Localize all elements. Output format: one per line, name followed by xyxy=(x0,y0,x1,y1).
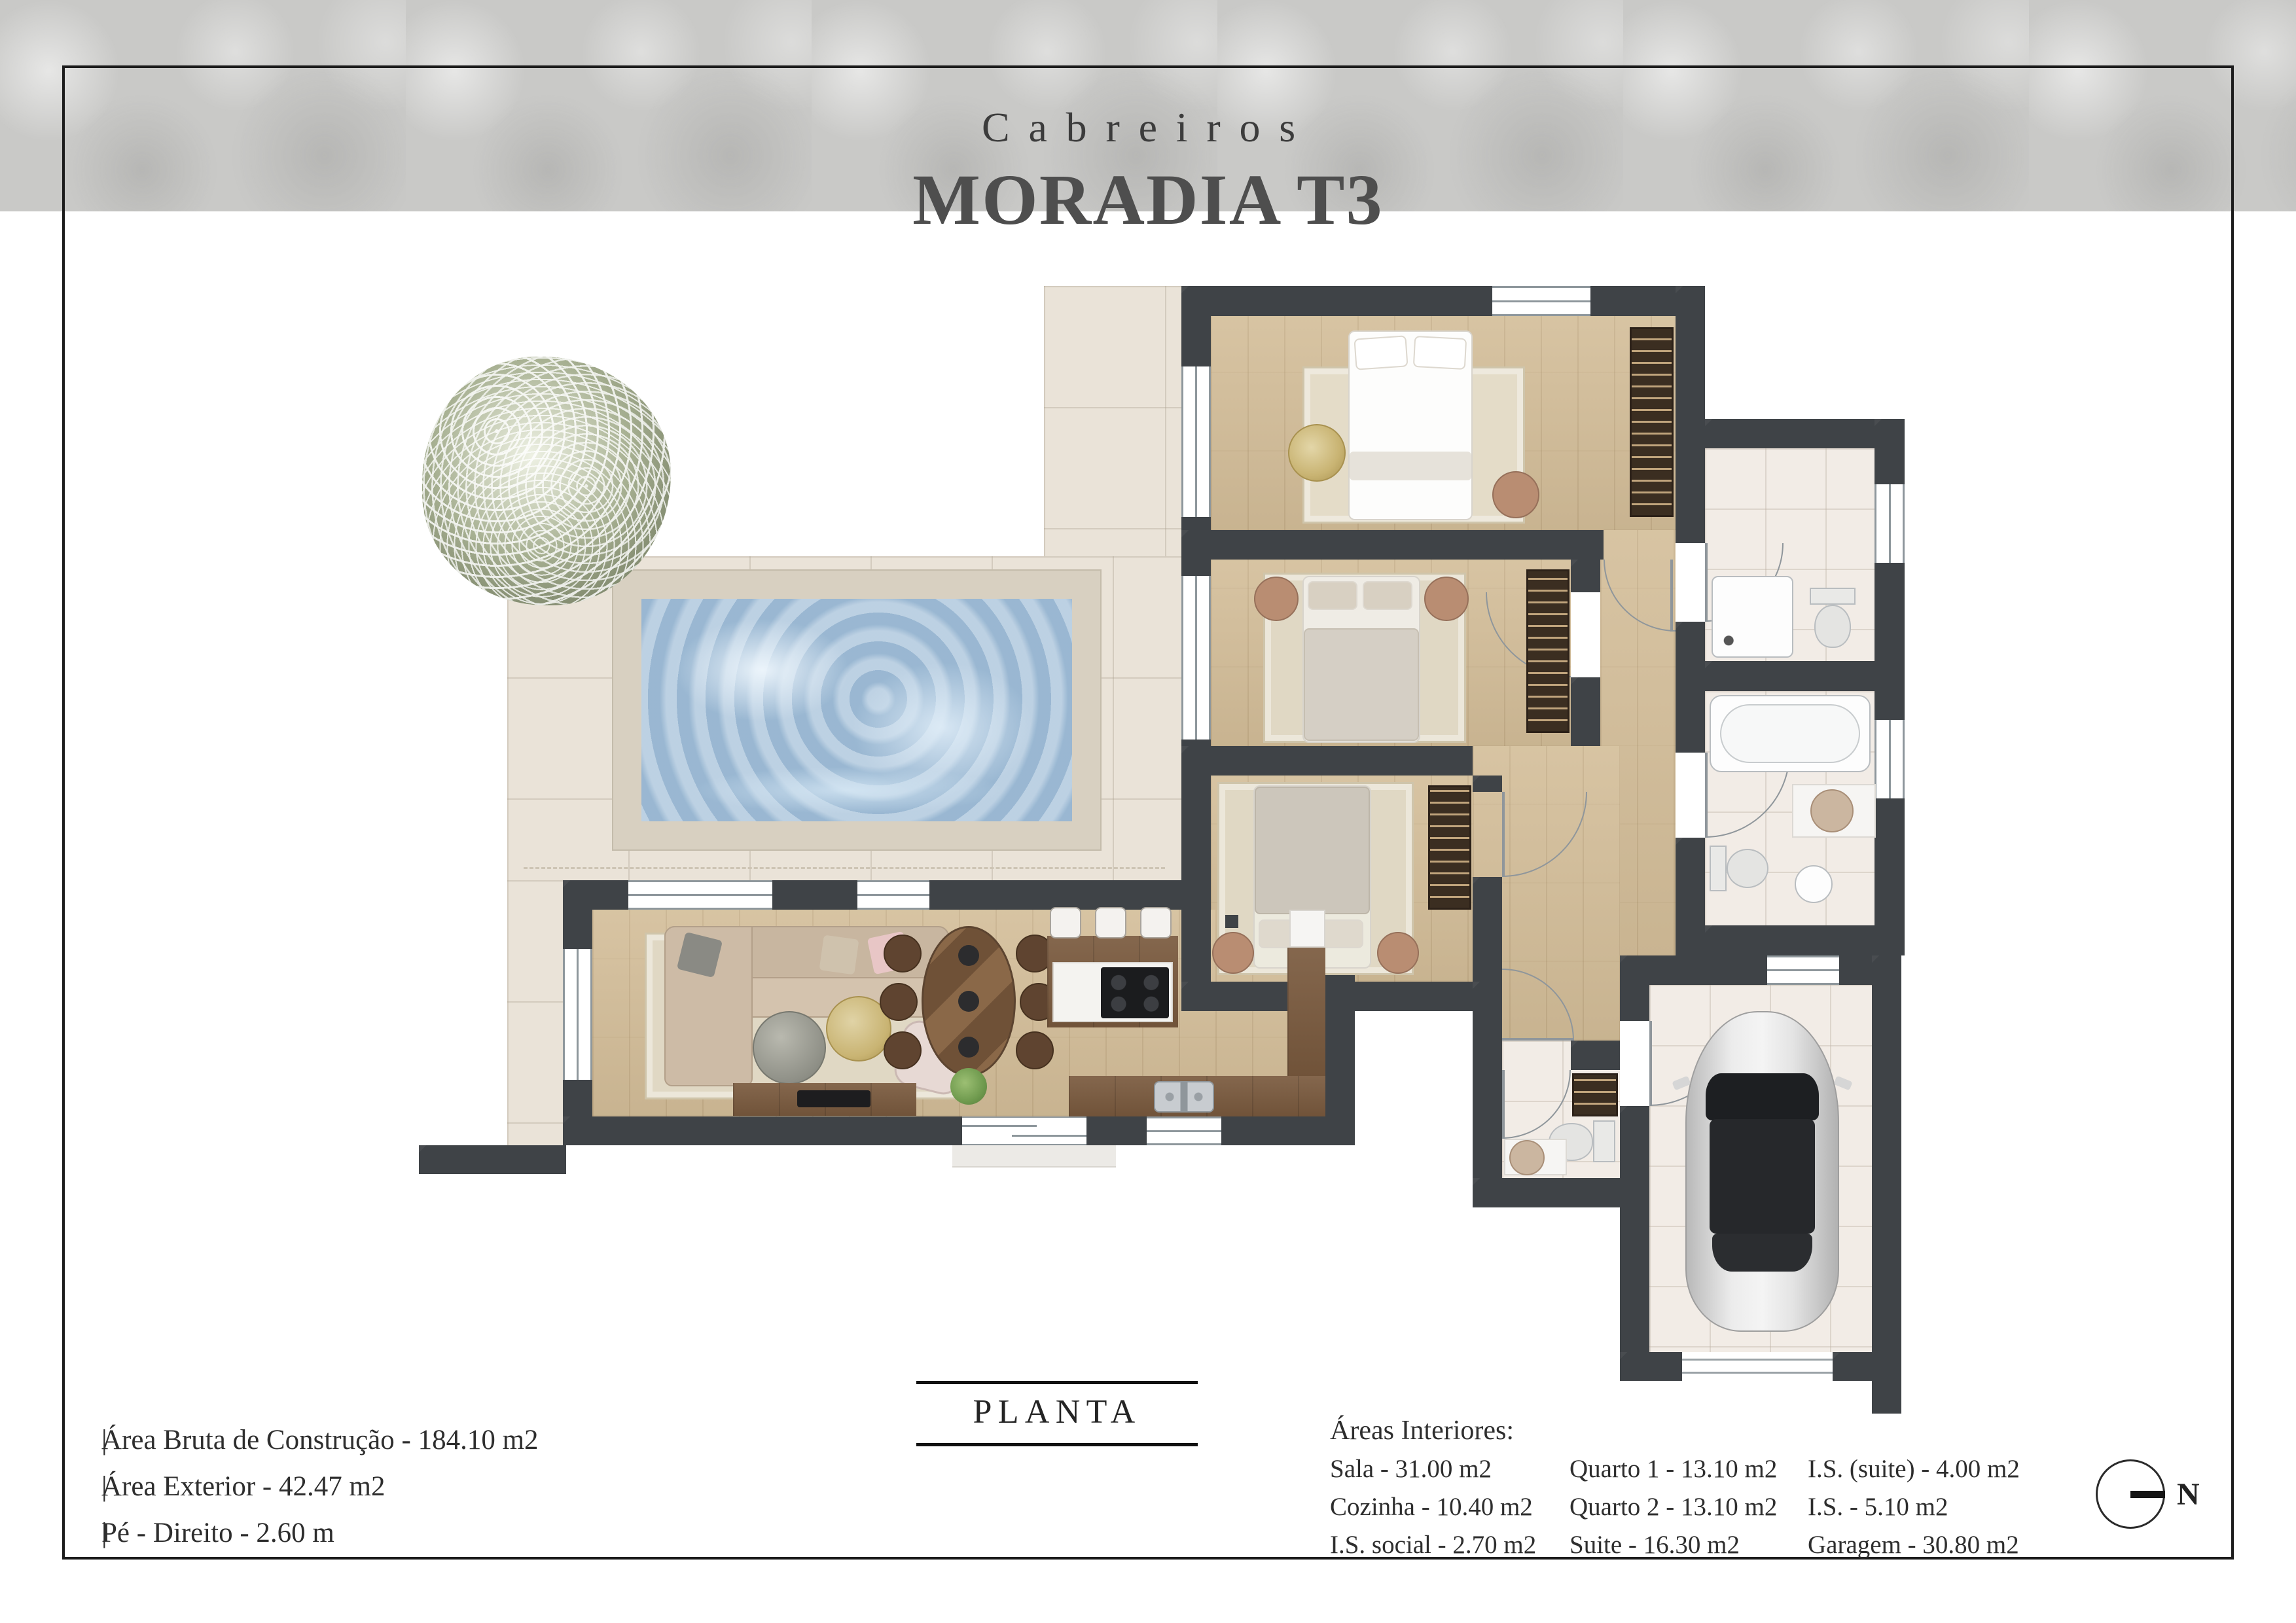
bedroom2-nightstand-left xyxy=(1212,932,1254,974)
dining-chair-3 xyxy=(884,1031,922,1069)
wall-q2-hall-a xyxy=(1473,776,1502,792)
car-rear-window xyxy=(1712,1234,1812,1272)
area-item: I.S. - 5.10 m2 xyxy=(1808,1492,2083,1522)
wall-deco-square-1 xyxy=(1198,915,1211,928)
bathroom-window xyxy=(1874,720,1905,798)
suite-side-table xyxy=(1492,471,1539,518)
bedroom1-duvet xyxy=(1304,628,1419,741)
garage-window xyxy=(1767,955,1839,985)
bathtub-inner xyxy=(1720,704,1860,763)
bedroom2-wardrobe xyxy=(1428,785,1471,910)
washbasin xyxy=(1810,789,1854,832)
suite-wardrobe xyxy=(1630,327,1674,517)
walkway xyxy=(952,1145,1116,1168)
living-north-window-2 xyxy=(857,880,929,910)
suite-toilet-bowl xyxy=(1814,605,1851,648)
suite-door-arc xyxy=(1604,560,1676,632)
wall-wc-top xyxy=(1571,1041,1620,1070)
suite-west-window xyxy=(1181,366,1211,517)
wall-suite-top xyxy=(1181,286,1705,316)
patio-joint-line xyxy=(524,867,1165,869)
bar-stool-3 xyxy=(1140,907,1172,938)
car-windshield xyxy=(1706,1073,1819,1120)
kitchen-counter-east xyxy=(1287,948,1325,1076)
spec-line: |Pé - Direito - 2.60 m xyxy=(101,1517,821,1549)
bedroom2-door-leaf xyxy=(1502,792,1505,877)
wall-bath-west-a xyxy=(1676,286,1705,543)
tree-blossom-texture xyxy=(422,357,671,605)
bedroom1-nightstand-left xyxy=(1254,577,1299,621)
bar-stool-2 xyxy=(1095,907,1126,938)
plant xyxy=(950,1068,987,1105)
tv-screen xyxy=(797,1090,870,1107)
wc-basin xyxy=(1509,1140,1545,1175)
shower-tray xyxy=(1712,576,1793,658)
wall-bath-divider xyxy=(1705,661,1874,691)
spec-line: |Área Exterior - 42.47 m2 xyxy=(101,1471,821,1503)
spec-pipe: | xyxy=(101,1471,107,1503)
sofa-cushion-beige xyxy=(819,935,859,975)
suite-bed-throw xyxy=(1350,452,1471,480)
living-north-window-1 xyxy=(628,880,772,910)
wall-q1-corridor-a xyxy=(1571,560,1600,592)
suite-pillow-2 xyxy=(1413,336,1467,370)
area-item: Garagem - 30.80 m2 xyxy=(1808,1530,2083,1560)
wall-deco-square-2 xyxy=(1225,915,1238,928)
patio-strip-west xyxy=(507,880,563,1145)
wc-door-leaf xyxy=(1502,1070,1505,1139)
bidet xyxy=(1795,865,1833,903)
coffee-table-stone xyxy=(753,1011,826,1084)
wall-wc-west xyxy=(1473,982,1502,1207)
spec-line: |Área Bruta de Construção - 184.10 m2 xyxy=(101,1424,821,1456)
bathroom-door-leaf xyxy=(1705,753,1708,838)
toilet-tank xyxy=(1710,846,1727,891)
wall-q2-hall-b xyxy=(1473,877,1502,982)
dining-plate-1 xyxy=(958,945,979,966)
suite-toilet-tank xyxy=(1810,588,1856,605)
kitchen-sink xyxy=(1154,1081,1214,1113)
wall-suite-q1 xyxy=(1181,530,1604,560)
garage-door-opening xyxy=(1682,1352,1833,1381)
bedroom1-wardrobe xyxy=(1526,569,1570,733)
spec-text: Pé - Direito - 2.60 m xyxy=(101,1518,334,1548)
wall-bath-west-b xyxy=(1676,622,1705,753)
area-item: Sala - 31.00 m2 xyxy=(1330,1454,1566,1484)
wall-q1-corridor-b xyxy=(1571,677,1600,746)
areas-col-2: Quarto 1 - 13.10 m2 Quarto 2 - 13.10 m2 … xyxy=(1570,1454,1805,1560)
suite-door-leaf xyxy=(1670,560,1673,632)
suite-bath-window xyxy=(1874,484,1905,563)
wall-garage-west-b xyxy=(1620,1106,1649,1381)
presentation-sheet: Cabreiros MORADIA T3 xyxy=(0,0,2296,1623)
suite-pillow-1 xyxy=(1354,335,1408,370)
area-item: Quarto 1 - 13.10 m2 xyxy=(1570,1454,1805,1484)
wall-west-stub xyxy=(419,1145,566,1174)
area-item: Cozinha - 10.40 m2 xyxy=(1330,1492,1566,1522)
north-label: N xyxy=(2177,1476,2200,1512)
car-roof xyxy=(1710,1119,1815,1234)
spec-pipe: | xyxy=(101,1517,107,1549)
area-item: I.S. social - 2.70 m2 xyxy=(1330,1530,1566,1560)
area-item: Quarto 2 - 13.10 m2 xyxy=(1570,1492,1805,1522)
wall-living-south xyxy=(563,1116,1355,1145)
areas-title: Áreas Interiores: xyxy=(1330,1415,1514,1446)
wall-garage-bottom-a xyxy=(1620,1352,1682,1381)
pool-water xyxy=(641,599,1072,821)
bedroom2-duvet xyxy=(1255,787,1370,914)
spec-text: Área Bruta de Construção - 184.10 m2 xyxy=(101,1425,539,1455)
page-title: MORADIA T3 xyxy=(821,158,1475,243)
garage-side-door-leaf xyxy=(1649,1021,1652,1106)
plan-label: PLANTA xyxy=(916,1393,1198,1431)
dining-chair-2 xyxy=(880,983,918,1021)
bedroom1-pillow-2 xyxy=(1363,581,1412,610)
wall-q1-q2 xyxy=(1181,746,1473,776)
areas-col-3: I.S. (suite) - 4.00 m2 I.S. - 5.10 m2 Ga… xyxy=(1808,1454,2083,1560)
entry-closet xyxy=(1572,1073,1618,1116)
spec-pipe: | xyxy=(101,1424,107,1456)
wall-garage-east xyxy=(1872,955,1901,1414)
areas-col-1: Sala - 31.00 m2 Cozinha - 10.40 m2 I.S. … xyxy=(1330,1454,1566,1560)
cooktop xyxy=(1101,967,1169,1018)
wc-toilet-tank xyxy=(1593,1120,1615,1162)
bedroom2-door-arc xyxy=(1502,792,1587,877)
area-item: I.S. (suite) - 4.00 m2 xyxy=(1808,1454,2083,1484)
patio-strip-top xyxy=(1044,286,1181,556)
wall-bath-west-c xyxy=(1676,838,1705,955)
living-west-window xyxy=(563,949,592,1080)
suite-top-window xyxy=(1492,286,1590,316)
entry-door-arc xyxy=(1502,969,1574,1041)
bedroom1-west-window xyxy=(1181,576,1211,740)
kitchen-tall-unit xyxy=(1289,910,1325,948)
specs-block: |Área Bruta de Construção - 184.10 m2 |Á… xyxy=(101,1424,821,1549)
dining-chair-1 xyxy=(884,935,922,972)
suite-pendant-lamp xyxy=(1288,424,1346,482)
toilet-bowl xyxy=(1727,849,1768,888)
suite-bath-door-leaf xyxy=(1705,543,1708,622)
bedroom2-nightstand-right xyxy=(1377,932,1419,974)
dining-plate-2 xyxy=(958,991,979,1012)
entry-door-leaf xyxy=(1502,1038,1574,1041)
bar-stool-1 xyxy=(1050,907,1081,938)
area-item: Suite - 16.30 m2 xyxy=(1570,1530,1805,1560)
brand-name: Cabreiros xyxy=(821,103,1475,156)
bedroom1-pillow-1 xyxy=(1308,581,1357,610)
spec-text: Área Exterior - 42.47 m2 xyxy=(101,1471,385,1502)
dining-plate-3 xyxy=(958,1037,979,1058)
wall-garage-bottom-b xyxy=(1833,1352,1901,1381)
dining-chair-6 xyxy=(1016,1031,1054,1069)
kitchen-sink-window xyxy=(1147,1116,1221,1145)
living-sliding-door xyxy=(962,1116,1086,1145)
bedroom1-nightstand-right xyxy=(1424,577,1469,621)
wall-garage-top xyxy=(1620,955,1901,985)
north-compass-needle xyxy=(2130,1491,2165,1498)
